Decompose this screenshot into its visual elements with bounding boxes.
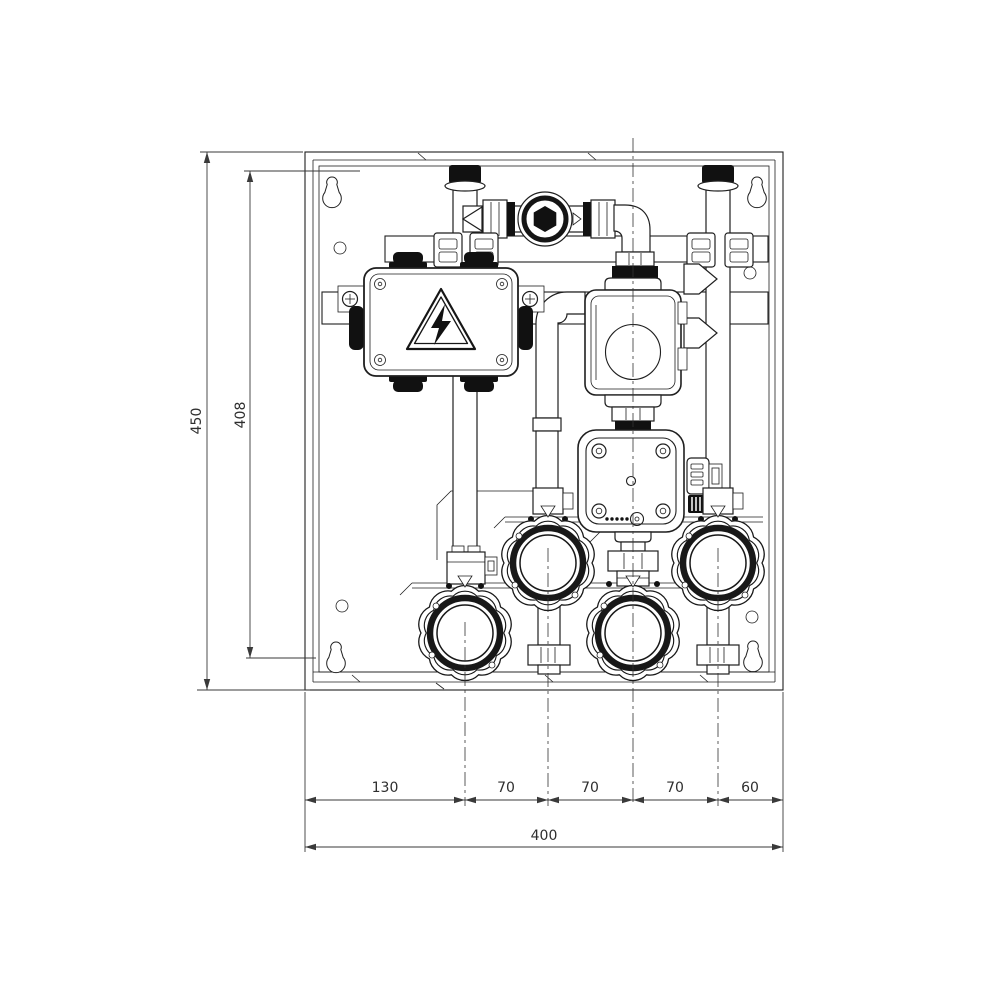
keyhole-bottom-left: [327, 642, 346, 673]
wall-hatch-tick: [588, 153, 596, 160]
lid-screw: [375, 279, 386, 290]
ball-valve-knob-2: [502, 515, 594, 610]
lid-screw: [497, 279, 508, 290]
keyhole-top-right: [748, 177, 767, 208]
dimension-overall-width: 400: [305, 828, 783, 850]
dim-label-70b: 70: [581, 780, 599, 796]
pump-screw: [592, 444, 606, 458]
dim-label-70a: 70: [497, 780, 515, 796]
dim-label-408: 408: [233, 402, 249, 429]
technical-drawing-page: 450 408 130 70 70 70 60 400: [0, 0, 1000, 1000]
dim-label-130: 130: [372, 780, 399, 796]
dim-label-60: 60: [741, 780, 759, 796]
dim-label-70c: 70: [666, 780, 684, 796]
pump-screw: [656, 504, 670, 518]
keyhole-bottom-right: [744, 641, 763, 672]
dimension-overall-height: 450: [189, 152, 310, 690]
dim-label-400: 400: [531, 828, 558, 844]
pump-screw: [592, 504, 606, 518]
upper-circulation-pump: [585, 278, 687, 430]
keyhole-top-left: [323, 177, 342, 208]
junction-box: [338, 252, 544, 392]
pipe-elbow: [614, 205, 650, 252]
lid-screw: [497, 355, 508, 366]
ball-valve-knob-4: [672, 515, 764, 610]
lid-screw: [375, 355, 386, 366]
pump-screw: [656, 444, 670, 458]
technical-drawing-canvas: 450 408 130 70 70 70 60 400: [0, 0, 1000, 1000]
dim-label-450: 450: [189, 408, 205, 435]
